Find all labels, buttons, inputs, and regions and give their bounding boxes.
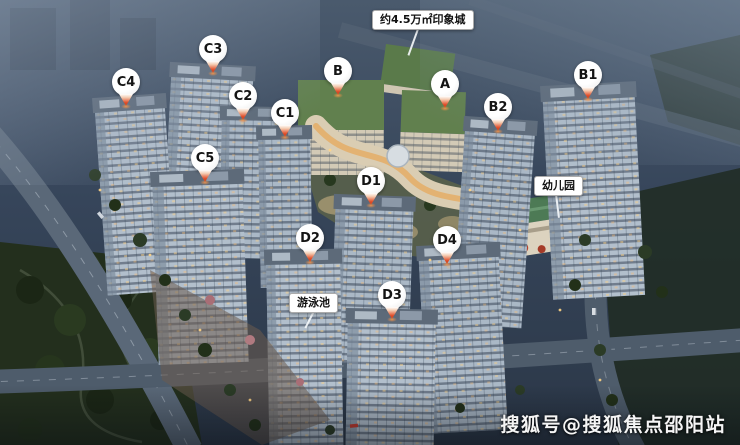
pin-b1: B1 [574, 61, 602, 102]
pin-c1: C1 [271, 99, 299, 140]
pin-b2: B2 [484, 93, 512, 134]
pin-label: D2 [300, 231, 320, 246]
pin-c4: C4 [112, 68, 140, 109]
watermark-text: 搜狐号@搜狐焦点邵阳站 [500, 410, 726, 437]
pin-glow [200, 180, 210, 185]
pin-label: B2 [489, 100, 508, 115]
fog-overlay [0, 0, 320, 185]
pin-c2: C2 [229, 82, 257, 123]
pin-label: C1 [276, 106, 295, 121]
pin-bubble: D4 [433, 226, 461, 254]
pin-bubble: A [431, 70, 459, 98]
pin-bubble: C1 [271, 99, 299, 127]
pin-label: A [440, 77, 450, 92]
pin-c3: C3 [199, 35, 227, 76]
pin-bubble: B1 [574, 61, 602, 89]
mall-area-label: 约4.5万㎡印象城 [372, 10, 474, 30]
pin-b: B [324, 57, 352, 98]
pin-glow [366, 203, 376, 208]
pin-glow [493, 129, 503, 134]
pin-bubble: C3 [199, 35, 227, 63]
pin-glow [440, 106, 450, 111]
pin-glow [387, 317, 397, 322]
pool-label: 游泳池 [289, 293, 338, 313]
aerial-rendering-image: C4 C3 C2 C1 C5 B A B2 B1 D1 D2 D3 [0, 0, 740, 445]
pin-glow [305, 260, 315, 265]
pin-d1: D1 [357, 167, 385, 208]
pin-label: C2 [234, 89, 253, 104]
pin-bubble: C4 [112, 68, 140, 96]
pin-bubble: D2 [296, 224, 324, 252]
pin-bubble: B [324, 57, 352, 85]
pin-bubble: D1 [357, 167, 385, 195]
pin-glow [280, 135, 290, 140]
pin-label: C4 [117, 75, 136, 90]
night-aerial-scene [0, 0, 740, 445]
pin-label: C3 [204, 42, 223, 57]
pin-label: C5 [196, 151, 215, 166]
pin-bubble: C2 [229, 82, 257, 110]
pin-a: A [431, 70, 459, 111]
kindergarten-label: 幼儿园 [534, 176, 583, 196]
pin-label: B [333, 64, 343, 79]
pin-glow [333, 93, 343, 98]
pin-glow [442, 262, 452, 267]
pin-label: D3 [382, 288, 402, 303]
pin-label: D1 [361, 174, 381, 189]
pin-bubble: B2 [484, 93, 512, 121]
pin-label: D4 [437, 233, 457, 248]
pin-bubble: D3 [378, 281, 406, 309]
pin-glow [583, 97, 593, 102]
pin-bubble: C5 [191, 144, 219, 172]
pin-glow [121, 104, 131, 109]
pin-d2: D2 [296, 224, 324, 265]
pin-label: B1 [579, 68, 598, 83]
pin-c5: C5 [191, 144, 219, 185]
pin-glow [238, 118, 248, 123]
pin-d3: D3 [378, 281, 406, 322]
pin-d4: D4 [433, 226, 461, 267]
pin-glow [208, 71, 218, 76]
